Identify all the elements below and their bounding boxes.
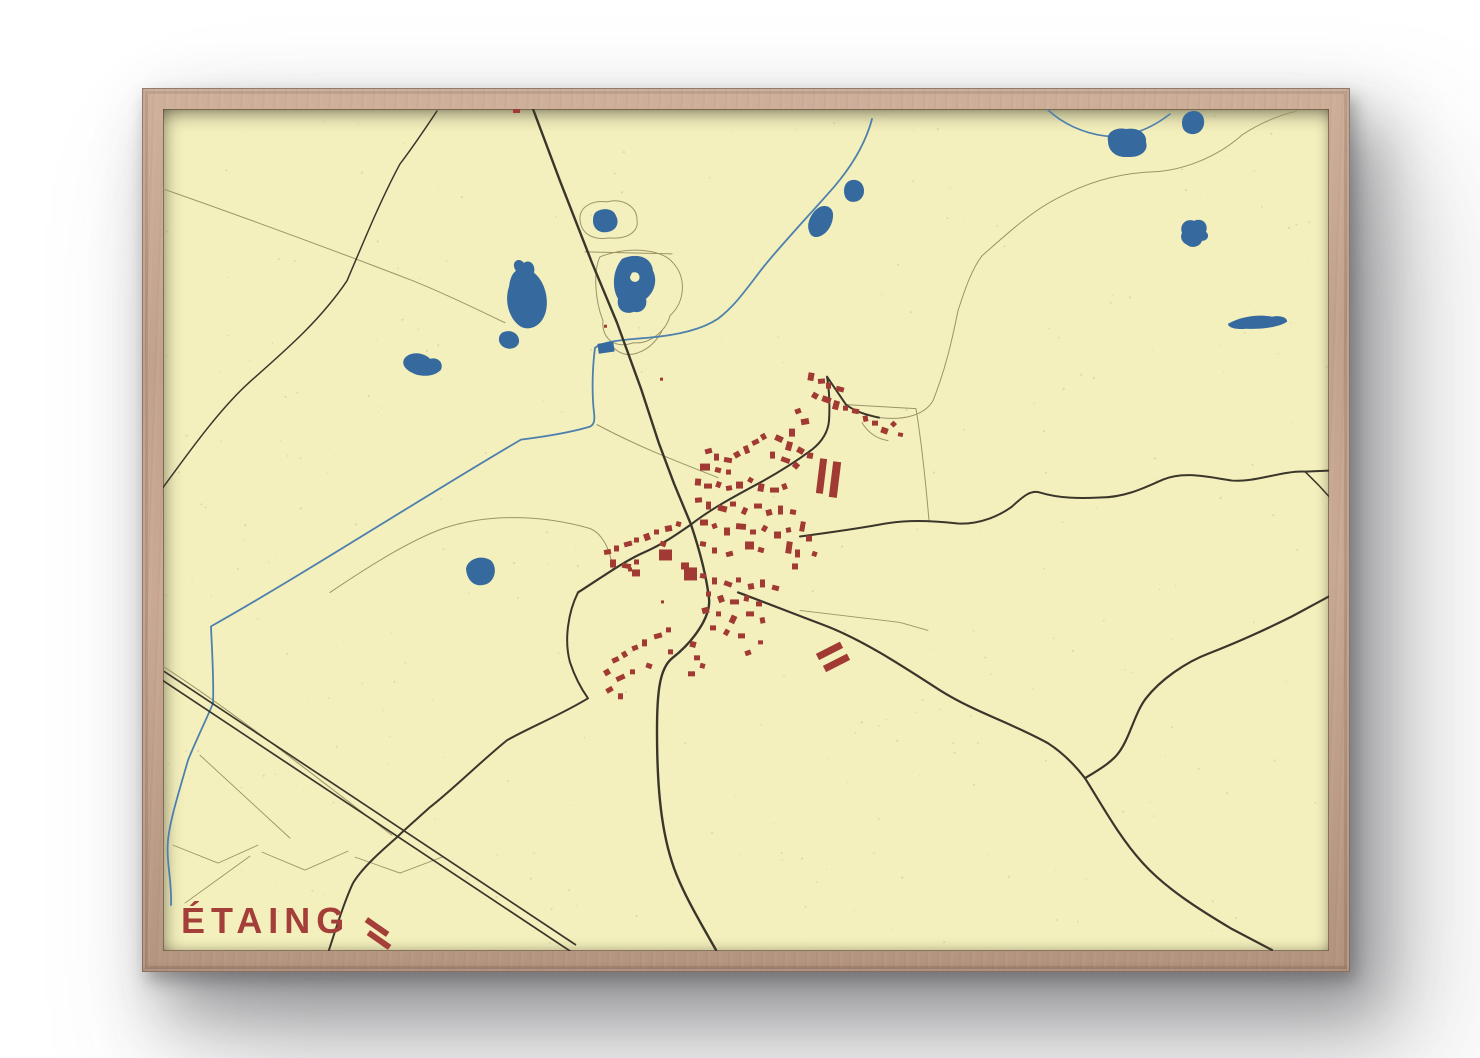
paper-speck bbox=[987, 854, 988, 855]
building bbox=[765, 509, 772, 516]
paper-speck bbox=[636, 410, 637, 411]
building bbox=[760, 433, 767, 441]
building bbox=[684, 567, 697, 580]
paper-speck bbox=[828, 758, 829, 759]
paper-speck bbox=[590, 215, 592, 217]
building bbox=[754, 504, 762, 509]
building bbox=[710, 625, 716, 630]
building bbox=[605, 686, 614, 694]
paper-speck bbox=[1253, 621, 1255, 623]
paper-speck bbox=[165, 594, 167, 596]
building bbox=[726, 485, 733, 491]
paper-speck bbox=[393, 681, 395, 683]
paper-speck bbox=[1053, 638, 1055, 640]
paper-speck bbox=[1150, 353, 1151, 354]
stream bbox=[1048, 110, 1170, 136]
road bbox=[657, 525, 716, 950]
minor-road bbox=[597, 425, 718, 478]
building bbox=[746, 611, 754, 616]
paper-speck bbox=[1277, 353, 1279, 354]
paper-speck bbox=[1295, 224, 1297, 226]
building-bar bbox=[829, 461, 841, 498]
building bbox=[761, 525, 768, 533]
building bbox=[747, 477, 754, 484]
paper-speck bbox=[1273, 924, 1274, 925]
building bbox=[890, 421, 897, 428]
paper-speck bbox=[711, 832, 713, 834]
minor-road bbox=[800, 610, 928, 630]
water-basin bbox=[597, 342, 614, 354]
building bbox=[628, 567, 632, 571]
paper-speck bbox=[1122, 811, 1124, 813]
paper-speck bbox=[1229, 155, 1230, 156]
paper-speck bbox=[730, 418, 731, 419]
paper-speck bbox=[542, 400, 543, 401]
paper-speck bbox=[1258, 252, 1259, 253]
paper-speck bbox=[988, 536, 989, 537]
paper-speck bbox=[873, 852, 875, 854]
paper-speck bbox=[1072, 650, 1074, 652]
paper-speck bbox=[361, 172, 363, 174]
road bbox=[1085, 596, 1329, 778]
paper-speck bbox=[358, 124, 359, 125]
buildings-layer bbox=[603, 372, 903, 699]
paper-speck bbox=[551, 908, 553, 910]
building bbox=[736, 482, 743, 489]
paper-speck bbox=[739, 854, 740, 855]
paper-speck bbox=[604, 571, 605, 572]
paper-speck bbox=[555, 216, 557, 218]
paper-speck bbox=[466, 877, 468, 879]
building bbox=[880, 427, 889, 435]
paper-speck bbox=[1212, 930, 1213, 931]
paper-speck bbox=[1220, 345, 1221, 346]
paper-speck bbox=[781, 852, 783, 854]
road bbox=[163, 111, 437, 488]
building bbox=[807, 372, 814, 381]
paper-speck bbox=[1159, 589, 1160, 590]
paper-speck bbox=[704, 474, 705, 475]
paper-speck bbox=[973, 783, 975, 785]
paper-speck bbox=[1221, 814, 1222, 815]
paper-speck bbox=[1043, 568, 1045, 570]
building bbox=[792, 563, 798, 569]
paper-speck bbox=[1043, 430, 1045, 432]
lake bbox=[466, 558, 495, 586]
paper-speck bbox=[1048, 327, 1050, 329]
paper-speck bbox=[1034, 402, 1035, 403]
paper-speck bbox=[266, 335, 267, 336]
paper-speck bbox=[1165, 756, 1166, 757]
paper-speck bbox=[378, 411, 379, 412]
paper-speck bbox=[441, 499, 443, 501]
paper-speck bbox=[778, 336, 779, 337]
paper-speck bbox=[333, 802, 335, 804]
paper-speck bbox=[930, 648, 931, 649]
building bbox=[790, 509, 797, 515]
building bbox=[801, 418, 810, 425]
paper-speck bbox=[200, 503, 202, 505]
paper-speck bbox=[296, 392, 298, 394]
lake bbox=[614, 256, 655, 313]
paper-speck bbox=[335, 455, 336, 456]
paper-speck bbox=[1254, 170, 1255, 171]
building bbox=[654, 530, 659, 535]
paper-speck bbox=[418, 329, 419, 330]
building bbox=[634, 537, 639, 542]
building-bar bbox=[823, 654, 850, 672]
building bbox=[723, 629, 730, 637]
paper-speck bbox=[1055, 919, 1057, 921]
paper-speck bbox=[355, 523, 357, 525]
paper-speck bbox=[576, 905, 577, 906]
paper-speck bbox=[377, 240, 379, 242]
paper-speck bbox=[1244, 332, 1246, 334]
paper-speck bbox=[228, 335, 230, 337]
building bbox=[799, 521, 806, 532]
paper-speck bbox=[439, 189, 440, 190]
building bbox=[665, 525, 673, 532]
building bbox=[778, 506, 783, 515]
paper-speck bbox=[485, 452, 487, 454]
lake bbox=[844, 180, 864, 202]
paper-speck bbox=[639, 327, 641, 329]
paper-speck bbox=[471, 544, 472, 545]
map-mark bbox=[660, 378, 663, 381]
building bbox=[700, 464, 710, 471]
paper-speck bbox=[760, 724, 761, 725]
paper-speck bbox=[1059, 703, 1060, 704]
minor-road bbox=[163, 189, 505, 323]
paper-speck bbox=[403, 142, 404, 143]
paper-speck bbox=[623, 151, 625, 153]
paper-speck bbox=[804, 906, 806, 908]
paper-speck bbox=[1055, 869, 1056, 870]
paper-speck bbox=[854, 732, 856, 734]
paper-speck bbox=[468, 592, 469, 593]
building bbox=[760, 617, 766, 624]
building bbox=[659, 549, 672, 560]
lake bbox=[507, 260, 547, 328]
paper-speck bbox=[672, 883, 674, 885]
building bbox=[781, 483, 788, 490]
paper-speck bbox=[896, 740, 898, 742]
etaing-town-map: ÉTAING bbox=[163, 109, 1329, 951]
building bbox=[757, 547, 764, 553]
paper-speck bbox=[245, 175, 246, 176]
marks-layer bbox=[365, 109, 663, 950]
paper-speck bbox=[405, 662, 406, 663]
building bbox=[774, 434, 784, 443]
paper-speck bbox=[241, 787, 243, 789]
lake bbox=[499, 331, 519, 349]
paper-speck bbox=[442, 548, 444, 550]
paper-speck bbox=[661, 881, 662, 882]
streams-layer bbox=[168, 110, 1170, 905]
paper-speck bbox=[530, 878, 532, 880]
paper-speck bbox=[783, 676, 785, 678]
paper-speck bbox=[583, 737, 585, 739]
paper-speck bbox=[1251, 464, 1253, 466]
paper-speck bbox=[1124, 669, 1125, 670]
paper-speck bbox=[645, 368, 646, 369]
paper-speck bbox=[621, 191, 623, 193]
paper-speck bbox=[450, 394, 451, 395]
building bbox=[760, 579, 765, 587]
paper-speck bbox=[1290, 422, 1291, 423]
paper-speck bbox=[1084, 851, 1085, 852]
lakes-layer bbox=[403, 111, 1287, 585]
building bbox=[623, 541, 632, 548]
building bbox=[603, 668, 611, 676]
paper-speck bbox=[284, 396, 286, 398]
paper-speck bbox=[783, 362, 784, 363]
building bbox=[811, 551, 817, 557]
paper-speck bbox=[166, 355, 167, 356]
paper-speck bbox=[807, 943, 808, 944]
paper-speck bbox=[238, 282, 239, 283]
paper-speck bbox=[782, 859, 784, 861]
paper-speck bbox=[197, 750, 199, 752]
paper-speck bbox=[881, 114, 883, 116]
paper-speck bbox=[905, 409, 907, 411]
paper-speck bbox=[558, 652, 560, 654]
paper-speck bbox=[220, 440, 221, 441]
road bbox=[1305, 472, 1329, 497]
lake bbox=[1108, 129, 1147, 157]
building bbox=[631, 644, 638, 651]
paper-speck bbox=[275, 774, 277, 776]
building bbox=[748, 583, 755, 590]
paper-speck bbox=[495, 896, 497, 898]
paper-speck bbox=[568, 889, 570, 891]
paper-speck bbox=[1154, 457, 1156, 459]
paper-speck bbox=[308, 697, 309, 698]
building-bar bbox=[816, 642, 843, 660]
paper-speck bbox=[257, 618, 259, 620]
building bbox=[688, 671, 695, 676]
paper-speck bbox=[1063, 388, 1065, 390]
paper-speck bbox=[294, 260, 296, 262]
paper-speck bbox=[886, 719, 888, 720]
paper-speck bbox=[168, 146, 169, 147]
building bbox=[618, 693, 623, 699]
paper-speck bbox=[228, 277, 229, 278]
paper-speck bbox=[816, 881, 818, 883]
paper-speck bbox=[166, 231, 168, 233]
map-title: ÉTAING bbox=[181, 900, 350, 941]
paper-speck bbox=[796, 129, 798, 131]
minor-road bbox=[880, 111, 1297, 418]
paper-speck bbox=[513, 562, 515, 564]
paper-speck bbox=[1077, 921, 1079, 923]
paper-speck bbox=[168, 763, 170, 765]
building bbox=[785, 541, 793, 554]
building bbox=[796, 446, 805, 455]
building bbox=[706, 502, 711, 510]
paper-speck bbox=[973, 630, 975, 631]
paper-speck bbox=[546, 531, 548, 533]
paper-speck bbox=[1314, 802, 1316, 804]
building bbox=[789, 429, 795, 437]
building bbox=[704, 448, 712, 455]
paper-speck bbox=[853, 910, 854, 911]
paper-speck bbox=[1308, 221, 1310, 223]
paper-speck bbox=[635, 915, 637, 917]
paper-speck bbox=[811, 845, 812, 846]
building bbox=[717, 595, 725, 604]
building bbox=[668, 649, 673, 654]
main-roads-layer bbox=[163, 109, 1329, 950]
minor-road bbox=[200, 755, 290, 838]
map-mark bbox=[513, 109, 520, 113]
paper-speck bbox=[287, 455, 289, 457]
paper-speck bbox=[1149, 801, 1150, 802]
paper-speck bbox=[960, 914, 961, 915]
paper-speck bbox=[205, 506, 207, 508]
paper-speck bbox=[631, 651, 633, 653]
paper-speck bbox=[1185, 189, 1187, 191]
paper-speck bbox=[933, 471, 935, 473]
paper-speck bbox=[1058, 337, 1060, 339]
paper-speck bbox=[1220, 497, 1222, 499]
building bbox=[645, 662, 652, 669]
paper-speck bbox=[444, 756, 445, 757]
paper-speck bbox=[497, 854, 499, 856]
paper-speck bbox=[912, 180, 914, 182]
paper-speck bbox=[684, 742, 686, 744]
paper-speck bbox=[1272, 514, 1274, 516]
paper-speck bbox=[546, 563, 547, 564]
paper-speck bbox=[841, 546, 843, 548]
map-poster-paper: ÉTAING bbox=[163, 109, 1329, 951]
building bbox=[643, 533, 651, 542]
paper-speck bbox=[984, 657, 986, 659]
building bbox=[604, 549, 612, 555]
road bbox=[691, 377, 879, 525]
paper-speck bbox=[952, 742, 954, 744]
paper-speck bbox=[272, 343, 273, 344]
paper-speck bbox=[549, 942, 551, 944]
building bbox=[714, 454, 719, 461]
paper-speck bbox=[296, 785, 297, 786]
building bbox=[704, 484, 712, 489]
paper-speck bbox=[1129, 296, 1131, 298]
paper-speck bbox=[1288, 227, 1290, 229]
building bbox=[712, 577, 717, 584]
building bbox=[806, 535, 812, 541]
building bbox=[666, 627, 671, 632]
building bbox=[807, 452, 814, 459]
paper-speck bbox=[1123, 628, 1124, 629]
paper-speck bbox=[1103, 620, 1105, 622]
paper-texture bbox=[165, 110, 1327, 944]
paper-speck bbox=[343, 641, 344, 642]
paper-speck bbox=[382, 710, 383, 711]
paper-speck bbox=[244, 524, 246, 526]
paper-speck bbox=[401, 494, 402, 495]
paper-speck bbox=[950, 188, 951, 189]
paper-speck bbox=[1213, 115, 1215, 117]
building bbox=[699, 663, 705, 669]
lake bbox=[1182, 111, 1204, 134]
building bbox=[610, 559, 616, 567]
building bbox=[741, 507, 748, 515]
building bbox=[744, 649, 751, 656]
paper-speck bbox=[243, 539, 244, 540]
building bbox=[695, 497, 702, 503]
building bbox=[832, 400, 840, 410]
paper-speck bbox=[327, 472, 328, 473]
paper-speck bbox=[1032, 688, 1033, 689]
paper-speck bbox=[246, 130, 247, 131]
building bbox=[694, 655, 700, 660]
building bbox=[653, 632, 662, 639]
building bbox=[716, 611, 721, 616]
building bbox=[780, 456, 790, 464]
paper-speck bbox=[881, 294, 883, 296]
paper-speck bbox=[1270, 133, 1272, 135]
paper-speck bbox=[657, 428, 658, 429]
paper-speck bbox=[1171, 639, 1172, 640]
paper-speck bbox=[347, 835, 348, 836]
building bbox=[695, 478, 702, 485]
paper-speck bbox=[275, 495, 276, 496]
paper-speck bbox=[1152, 350, 1153, 351]
building bbox=[634, 559, 639, 564]
paper-speck bbox=[1148, 263, 1149, 264]
paper-speck bbox=[649, 306, 650, 307]
paper-speck bbox=[970, 715, 972, 717]
paper-speck bbox=[1273, 759, 1275, 761]
building bbox=[736, 523, 746, 530]
paper-speck bbox=[1212, 900, 1214, 902]
building bbox=[811, 392, 819, 400]
minor-road bbox=[173, 845, 258, 863]
paper-speck bbox=[1192, 248, 1193, 249]
paper-speck bbox=[1096, 507, 1097, 508]
building bbox=[852, 408, 860, 414]
paper-speck bbox=[826, 869, 827, 870]
paper-speck bbox=[241, 870, 242, 871]
paper-speck bbox=[268, 562, 270, 564]
paper-speck bbox=[249, 360, 250, 361]
paper-speck bbox=[1132, 672, 1134, 674]
paper-speck bbox=[590, 349, 592, 351]
paper-speck bbox=[490, 817, 491, 818]
paper-speck bbox=[1109, 352, 1110, 353]
building bbox=[724, 457, 733, 463]
paper-speck bbox=[361, 682, 363, 684]
paper-speck bbox=[917, 529, 919, 531]
paper-speck bbox=[1045, 472, 1047, 474]
paper-speck bbox=[1113, 676, 1114, 677]
paper-speck bbox=[963, 218, 964, 219]
map-mark bbox=[604, 325, 607, 328]
building bbox=[717, 504, 727, 512]
building bbox=[863, 415, 869, 422]
paper-speck bbox=[1085, 879, 1086, 880]
paper-speck bbox=[1207, 193, 1208, 194]
road bbox=[800, 471, 1329, 537]
paper-speck bbox=[720, 341, 721, 342]
paper-speck bbox=[577, 565, 579, 567]
building bbox=[642, 639, 647, 646]
paper-speck bbox=[210, 596, 211, 597]
paper-speck bbox=[1030, 523, 1031, 524]
paper-speck bbox=[487, 478, 488, 479]
paper-speck bbox=[391, 632, 392, 633]
